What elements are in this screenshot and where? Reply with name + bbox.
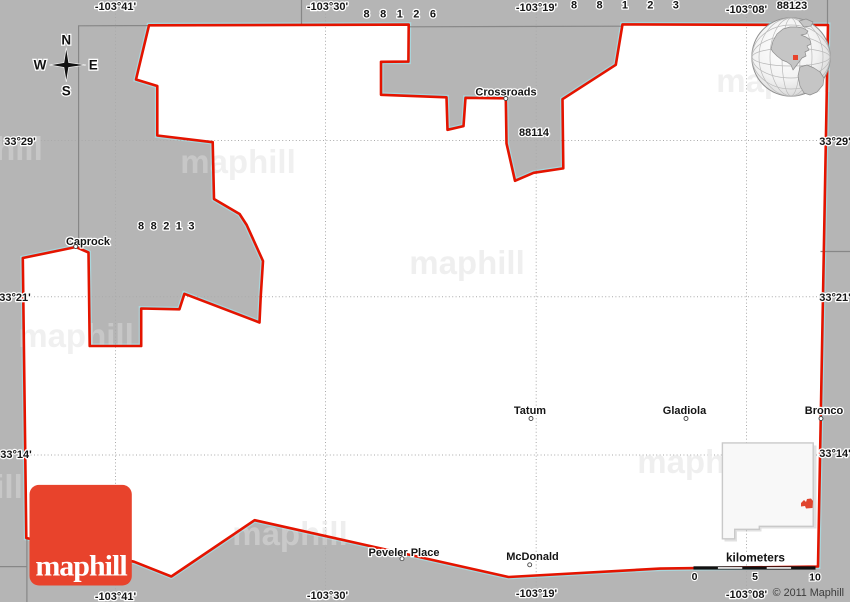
svg-text:-103°41': -103°41' (95, 591, 137, 602)
svg-text:-103°19': -103°19' (516, 2, 558, 14)
svg-text:88123: 88123 (571, 0, 698, 12)
svg-text:maphill: maphill (180, 143, 296, 180)
svg-text:Caprock: Caprock (66, 236, 111, 248)
svg-text:Peveler Place: Peveler Place (369, 547, 440, 559)
svg-text:N: N (61, 33, 71, 48)
svg-text:33°14': 33°14' (819, 448, 850, 460)
svg-text:maphill: maphill (0, 468, 23, 505)
svg-text:-103°30': -103°30' (307, 590, 349, 602)
svg-text:33°21': 33°21' (819, 292, 850, 304)
svg-text:kilometers: kilometers (726, 551, 785, 565)
svg-text:maphill: maphill (18, 317, 134, 354)
svg-text:88114: 88114 (519, 127, 550, 139)
svg-text:-103°08': -103°08' (726, 4, 768, 16)
svg-text:S: S (62, 83, 71, 98)
svg-text:-103°08': -103°08' (726, 589, 768, 601)
svg-text:-103°19': -103°19' (516, 588, 558, 600)
svg-text:88213: 88213 (138, 221, 201, 233)
svg-text:33°29': 33°29' (819, 136, 850, 148)
svg-text:© 2011 Maphill: © 2011 Maphill (773, 587, 844, 599)
svg-text:5: 5 (752, 571, 758, 583)
svg-text:Tatum: Tatum (514, 405, 546, 417)
svg-text:E: E (89, 57, 98, 72)
svg-text:88123: 88123 (777, 0, 808, 12)
svg-text:maphill: maphill (409, 244, 525, 281)
svg-text:33°14': 33°14' (0, 449, 32, 461)
svg-text:33°29': 33°29' (4, 136, 36, 148)
svg-text:10: 10 (809, 572, 821, 584)
svg-text:-103°41': -103°41' (95, 1, 137, 13)
svg-text:Gladiola: Gladiola (663, 405, 707, 417)
svg-text:maphill: maphill (232, 515, 348, 552)
svg-text:Bronco: Bronco (805, 405, 844, 417)
svg-text:0: 0 (692, 571, 698, 583)
svg-text:W: W (34, 57, 47, 72)
svg-text:maphill: maphill (35, 550, 127, 583)
svg-text:33°21': 33°21' (0, 292, 31, 304)
svg-text:88126: 88126 (363, 9, 446, 21)
svg-text:McDonald: McDonald (506, 551, 559, 563)
svg-text:-103°30': -103°30' (307, 1, 349, 13)
